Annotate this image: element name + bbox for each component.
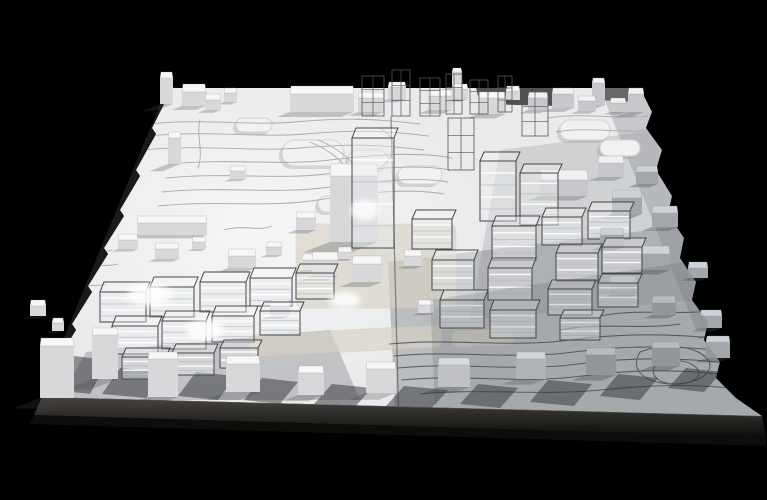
solid-building-top	[168, 132, 181, 138]
solid-building-top	[52, 318, 64, 323]
solid-building-top	[610, 98, 626, 103]
solid-building-front	[552, 94, 574, 108]
solid-building-top	[528, 92, 548, 98]
acrylic-highlight	[329, 292, 361, 308]
solid-building-top	[600, 228, 624, 235]
solid-building-top	[688, 262, 708, 268]
acrylic-highlight	[351, 200, 379, 220]
solid-building-top	[160, 72, 173, 78]
wireframe-building-top	[162, 311, 210, 321]
solid-building-top	[612, 190, 642, 198]
terrain-mound	[600, 140, 640, 156]
solid-building-top	[224, 88, 237, 93]
wireframe-building-front	[172, 353, 214, 375]
solid-building-top	[636, 166, 658, 172]
solid-building-front	[388, 87, 406, 99]
solid-building-top	[230, 166, 246, 171]
wireframe-building-top	[200, 272, 250, 282]
wireframe-building-top	[488, 258, 536, 268]
solid-building-front	[52, 323, 64, 331]
terrain-mound	[236, 118, 272, 132]
solid-building-top	[192, 237, 206, 242]
solid-building-front	[155, 249, 179, 259]
solid-building-front	[290, 94, 354, 112]
solid-building-top	[700, 310, 722, 316]
wireframe-building-top	[352, 128, 398, 138]
solid-building-front	[404, 256, 422, 266]
wireframe-building-front	[542, 217, 582, 245]
solid-building-front	[30, 306, 46, 316]
solid-building-top	[182, 84, 206, 92]
wireframe-building-front	[412, 219, 452, 249]
solid-building-top	[552, 88, 574, 94]
solid-building-front	[137, 223, 207, 235]
wireframe-building-front	[352, 138, 394, 248]
solid-building-front	[230, 171, 246, 179]
solid-building-top	[366, 362, 396, 369]
solid-building-front	[598, 163, 624, 177]
solid-building-front	[452, 89, 468, 99]
solid-building-top	[706, 336, 730, 342]
acrylic-highlight	[128, 284, 172, 306]
solid-building-front	[205, 100, 221, 110]
solid-building-top	[30, 300, 46, 306]
wireframe-building-top	[250, 268, 296, 278]
wireframe-building-top	[172, 344, 218, 353]
wireframe-building-front	[296, 273, 334, 299]
solid-building-top	[226, 356, 260, 364]
solid-building-top	[478, 92, 506, 98]
wireframe-building-front	[260, 311, 300, 335]
solid-building-top	[137, 216, 207, 223]
solid-building-top	[452, 84, 468, 89]
solid-building-front	[148, 359, 178, 397]
solid-building-top	[338, 247, 352, 252]
solid-building-front	[266, 247, 282, 255]
solid-building-top	[148, 352, 178, 359]
solid-building-front	[182, 92, 206, 106]
solid-building-top	[404, 250, 422, 256]
wireframe-building-front	[432, 260, 474, 290]
solid-building-front	[636, 172, 658, 184]
solid-building-front	[528, 98, 548, 110]
solid-building-top	[640, 246, 670, 254]
solid-building-top	[296, 212, 316, 218]
solid-building-front	[296, 218, 316, 230]
solid-building-front	[610, 103, 626, 112]
building-shadow	[277, 112, 354, 117]
wireframe-building-top	[412, 210, 456, 219]
solid-building-top	[598, 156, 624, 163]
solid-building-top	[352, 256, 382, 264]
solid-building-top	[228, 249, 256, 256]
acrylic-highlight	[186, 320, 224, 340]
solid-building-front	[338, 252, 352, 259]
solid-building-top	[298, 366, 324, 373]
solid-building-front	[92, 335, 118, 379]
solid-building-top	[205, 94, 221, 100]
solid-building-front	[226, 364, 260, 392]
solid-building-top	[628, 88, 644, 94]
wireframe-building-top	[296, 264, 338, 273]
solid-building-top	[506, 86, 520, 91]
solid-building-front	[628, 94, 644, 112]
solid-building-front	[40, 346, 74, 398]
solid-building-front	[366, 369, 396, 393]
wireframe-building-front	[480, 161, 516, 221]
wireframe-building-top	[480, 152, 520, 161]
solid-building-front	[298, 373, 324, 395]
wireframe-building-top	[492, 216, 540, 226]
wireframe-building-top	[588, 202, 634, 211]
solid-building-front	[160, 78, 173, 104]
solid-building-front	[168, 138, 181, 164]
solid-building-top	[155, 243, 179, 249]
screenshot-root	[0, 0, 767, 500]
wireframe-building-top	[112, 316, 162, 326]
wireframe-building-top	[556, 244, 602, 253]
solid-building-front	[478, 98, 506, 114]
wireframe-building-front	[492, 226, 536, 260]
solid-building-top	[312, 252, 338, 260]
solid-building-top	[592, 78, 605, 83]
wireframe-building-top	[602, 238, 646, 247]
solid-building-top	[290, 86, 354, 94]
wireframe-building-top	[520, 164, 562, 173]
solid-building-top	[452, 68, 462, 72]
solid-building-front	[224, 93, 237, 102]
solid-building-top	[578, 96, 596, 101]
wireframe-building-top	[212, 306, 258, 316]
solid-building-front	[228, 256, 256, 268]
wireframe-building-top	[220, 340, 262, 348]
solid-building-front	[192, 242, 206, 249]
solid-building-top	[118, 234, 138, 240]
solid-building-front	[652, 213, 678, 227]
solid-building-front	[506, 91, 520, 100]
solid-building-front	[352, 264, 382, 282]
solid-building-top	[40, 338, 74, 346]
terrain-mound	[398, 166, 442, 184]
solid-building-front	[118, 240, 138, 249]
solid-building-top	[652, 206, 678, 213]
solid-building-top	[92, 328, 118, 335]
model-photograph	[0, 0, 767, 500]
solid-building-front	[578, 101, 596, 111]
wireframe-building-front	[602, 247, 642, 273]
solid-building-top	[388, 82, 406, 87]
wireframe-building-top	[432, 250, 478, 260]
wireframe-building-top	[542, 208, 586, 217]
solid-building-top	[266, 242, 282, 247]
wireframe-building-top	[260, 302, 304, 311]
